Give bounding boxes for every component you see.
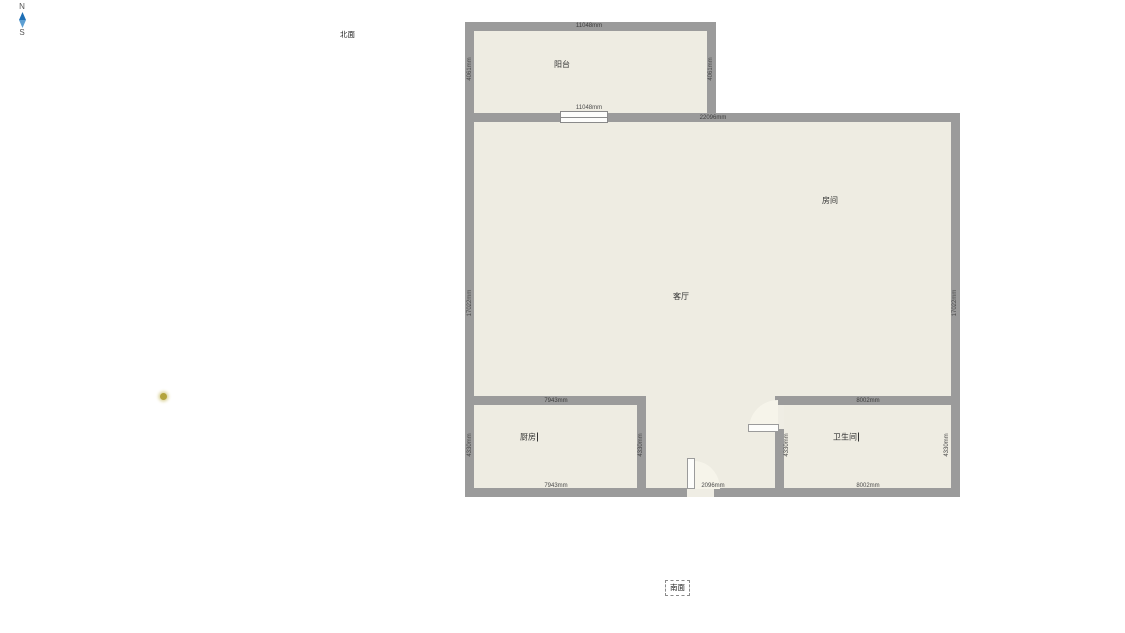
dim-kitchen-top: 7943mm — [544, 398, 567, 404]
dim-balcony-right: 4061mm — [708, 57, 714, 80]
window-pane-line — [561, 117, 607, 118]
dim-balcony-left: 4061mm — [467, 57, 473, 80]
room-area-main[interactable] — [474, 122, 951, 488]
room-label-balcony-text: 阳台 — [554, 61, 570, 69]
room-area-balcony[interactable] — [474, 31, 707, 113]
dim-bathroom-bottom: 8002mm — [856, 483, 879, 489]
compass-south-label: S — [12, 29, 32, 37]
dim-entry-door: 2096mm — [701, 483, 724, 489]
compass-needle-icon — [18, 12, 27, 28]
entry-door-icon[interactable] — [687, 458, 695, 489]
room-label-balcony[interactable]: 阳台 — [554, 61, 570, 69]
dim-main-right: 17022mm — [952, 290, 958, 317]
room-label-kitchen[interactable]: 厨房 — [520, 433, 538, 442]
dim-balcony-top: 11048mm — [576, 23, 602, 29]
room-label-bedroom-text: 房间 — [822, 197, 838, 205]
text-caret — [858, 433, 859, 442]
dim-kitchen-left: 4330mm — [467, 433, 473, 456]
dim-kitchen-bottom: 7943mm — [544, 483, 567, 489]
room-label-living[interactable]: 客厅 — [673, 293, 689, 301]
dim-main-left: 17022mm — [467, 290, 473, 317]
room-label-kitchen-text: 厨房 — [520, 433, 536, 441]
room-label-living-text: 客厅 — [673, 293, 689, 301]
entry-door-opening — [687, 488, 714, 497]
dim-kitchen-right: 4330mm — [638, 433, 644, 456]
dim-bathroom-right: 4330mm — [944, 433, 950, 456]
compass: N S — [12, 3, 32, 37]
dim-main-top: 22096mm — [700, 115, 727, 121]
north-side-label[interactable]: 北面 — [340, 31, 355, 39]
room-label-bathroom[interactable]: 卫生间 — [833, 433, 859, 442]
window-icon[interactable] — [560, 111, 608, 123]
room-label-bathroom-text: 卫生间 — [833, 433, 857, 441]
dim-balcony-bottom: 11048mm — [576, 105, 602, 111]
dim-bathroom-left: 4330mm — [784, 433, 790, 456]
marker-dot[interactable] — [160, 393, 167, 400]
south-side-label[interactable]: 南面 — [665, 580, 690, 596]
room-label-bedroom[interactable]: 房间 — [822, 197, 838, 205]
bathroom-door-icon[interactable] — [748, 424, 779, 432]
text-caret — [537, 433, 538, 442]
compass-north-label: N — [12, 3, 32, 11]
dim-bathroom-top: 8002mm — [856, 398, 879, 404]
